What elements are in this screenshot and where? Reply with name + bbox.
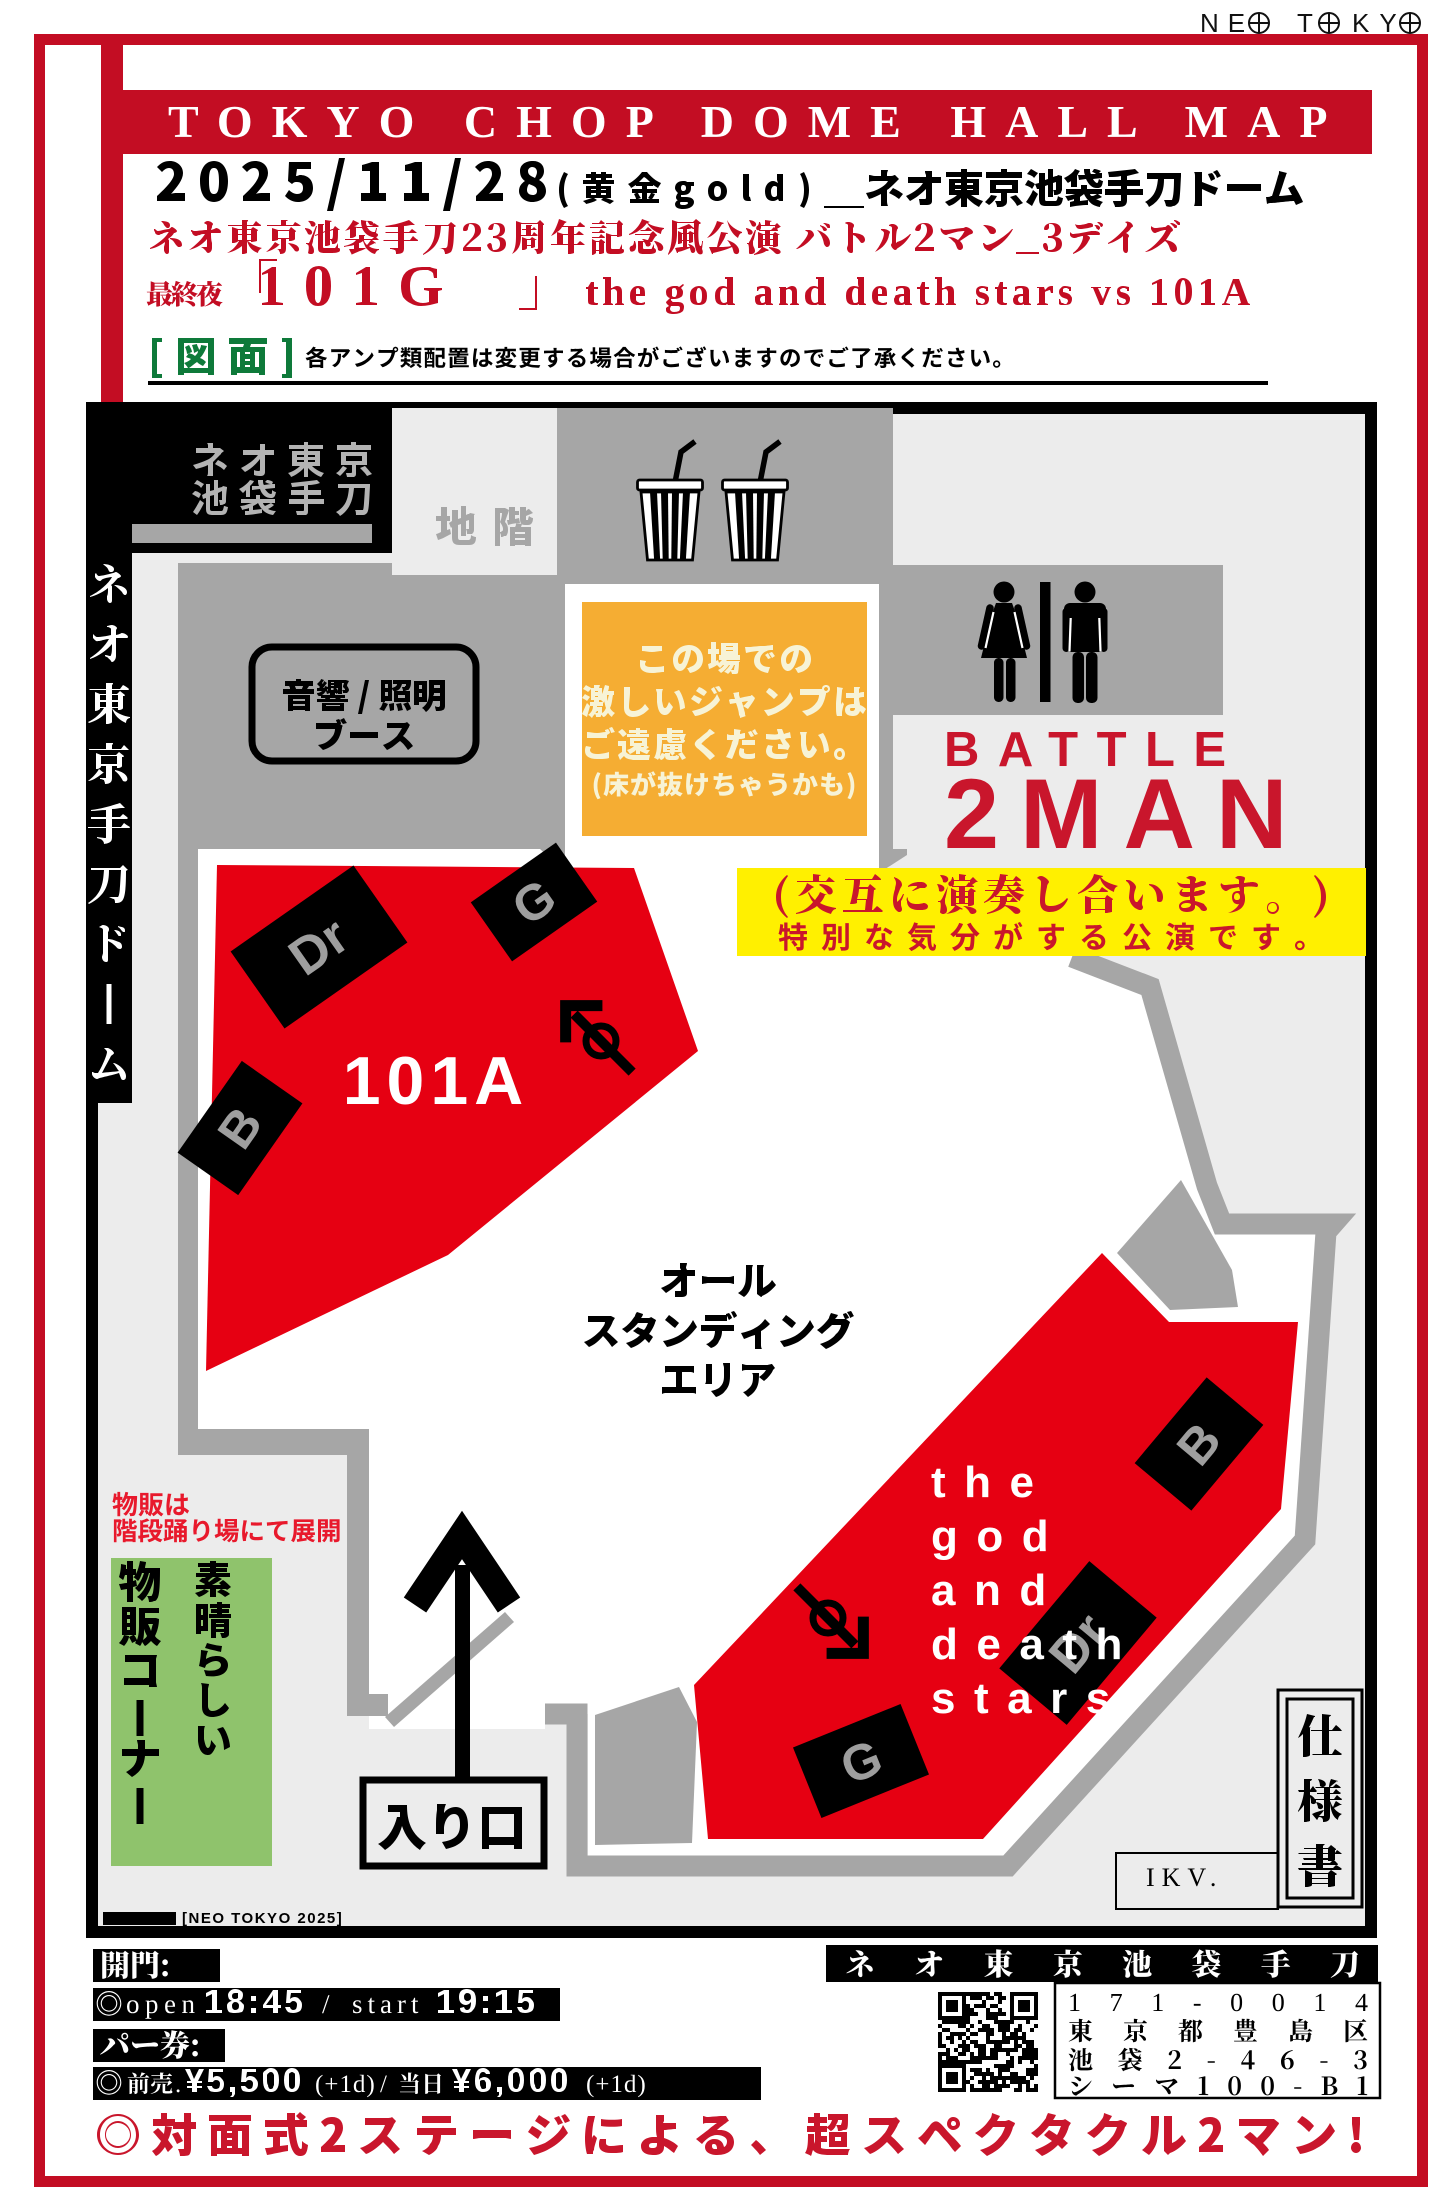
svg-text:101A: 101A	[343, 1043, 530, 1119]
svg-text:NE: NE	[1200, 8, 1254, 38]
svg-text:KY: KY	[1352, 8, 1407, 38]
svg-text:god: god	[931, 1512, 1067, 1561]
svg-text:stars: stars	[931, 1674, 1129, 1723]
svg-text:2MAN: 2MAN	[944, 758, 1309, 869]
svg-text:death: death	[931, 1620, 1141, 1669]
svg-text:IKV.: IKV.	[1146, 1863, 1223, 1892]
svg-text:TOKYO CHOP DOME HALL MAP: TOKYO CHOP DOME HALL MAP	[168, 96, 1346, 147]
svg-text:the: the	[931, 1458, 1053, 1507]
svg-text:[NEO TOKYO 2025]: [NEO TOKYO 2025]	[182, 1910, 343, 1927]
svg-text:and: and	[931, 1566, 1065, 1615]
svg-text:T: T	[1297, 8, 1313, 38]
